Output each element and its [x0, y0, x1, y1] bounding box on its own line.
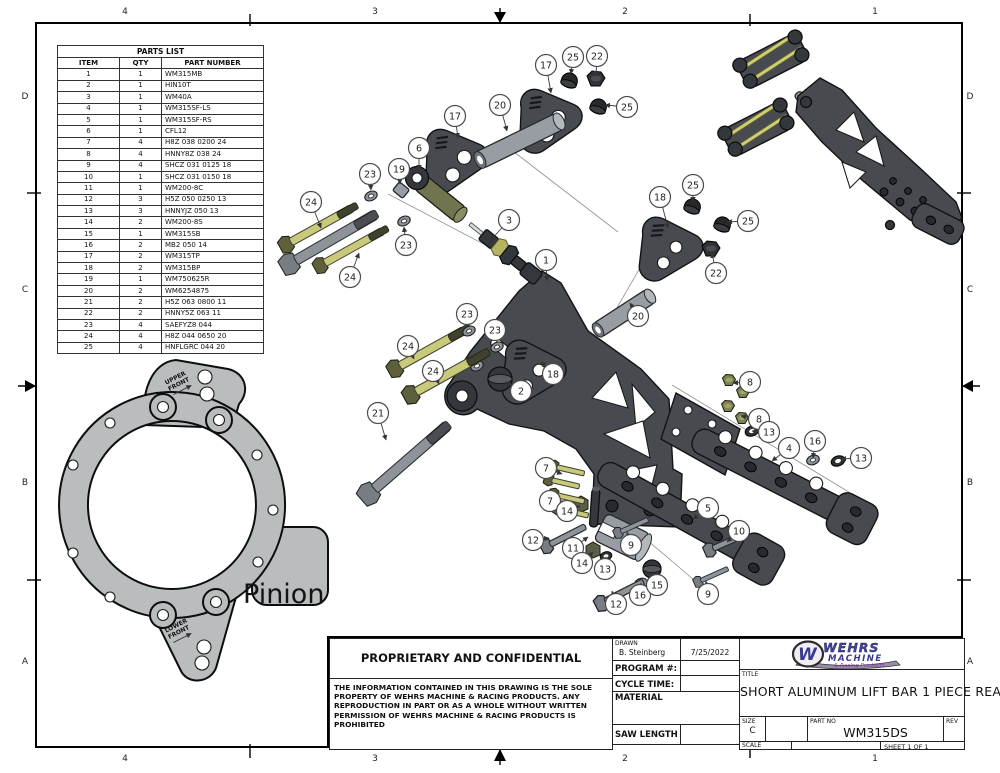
svg-text:9: 9	[705, 589, 711, 600]
cell-qty: 2	[120, 297, 162, 308]
proprietary-heading: PROPRIETARY AND CONFIDENTIAL	[330, 639, 612, 677]
part-cap-25d	[713, 215, 733, 234]
rev-cell: REV	[943, 716, 965, 742]
cell-item: 17	[58, 251, 120, 262]
cell-qty: 4	[120, 149, 162, 160]
svg-text:5: 5	[705, 503, 711, 514]
cell-item: 2	[58, 80, 120, 91]
cell-qty: 1	[120, 126, 162, 137]
cell-part-number: HNNYJZ 050 13	[162, 206, 264, 217]
scale-label: SCALE	[742, 742, 761, 749]
weight-cell	[791, 741, 881, 750]
table-row: 61CFL12	[58, 126, 264, 137]
cell-part-number: WM315SB	[162, 228, 264, 239]
table-row: 31WM40A	[58, 92, 264, 103]
size-value: C	[740, 726, 765, 736]
table-row: 51WM315SF-RS	[58, 114, 264, 125]
balloon-22: 22	[706, 253, 727, 284]
cell-part-number: SAEFYZ8 044	[162, 319, 264, 330]
svg-text:23: 23	[364, 169, 376, 180]
cell-item: 8	[58, 149, 120, 160]
cell-item: 10	[58, 171, 120, 182]
scale-cell: SCALE	[739, 741, 792, 750]
svg-text:8: 8	[747, 377, 753, 388]
cell-part-number: WM315TP	[162, 251, 264, 262]
cell-qty: 2	[120, 285, 162, 296]
cell-item: 21	[58, 297, 120, 308]
col-item: ITEM	[58, 58, 120, 69]
cell-part-number: HNFLGRC 044 20	[162, 342, 264, 353]
cell-qty: 3	[120, 206, 162, 217]
svg-text:16: 16	[634, 590, 646, 601]
cell-part-number: WM315BP	[162, 263, 264, 274]
cell-part-number: SHCZ 031 0150 18	[162, 171, 264, 182]
parts-list-body: 11WM315MB21HIN10T31WM40A41WM315SF-LS51WM…	[58, 69, 264, 354]
cell-item: 6	[58, 126, 120, 137]
svg-text:20: 20	[632, 311, 644, 322]
table-row: 123H5Z 050 0250 13	[58, 194, 264, 205]
title-block: PROPRIETARY AND CONFIDENTIAL THE INFORMA…	[327, 636, 963, 748]
cell-item: 20	[58, 285, 120, 296]
cell-item: 19	[58, 274, 120, 285]
drawn-date-cell: 7/25/2022	[680, 638, 740, 661]
cell-qty: 2	[120, 251, 162, 262]
svg-text:22: 22	[591, 51, 603, 62]
cell-part-number: H8Z 038 0200 24	[162, 137, 264, 148]
cell-part-number: HIN10T	[162, 80, 264, 91]
svg-text:12: 12	[527, 535, 539, 546]
svg-text:21: 21	[372, 408, 384, 419]
cell-part-number: WM200-8C	[162, 183, 264, 194]
cell-item: 22	[58, 308, 120, 319]
balloon-21: 21	[368, 403, 389, 441]
part-no-label: PART NO	[810, 718, 836, 725]
assembled-rocker-lower	[715, 96, 798, 160]
table-row: 142WM200-8S	[58, 217, 264, 228]
col-qty: QTY	[120, 58, 162, 69]
part-nut-8a	[723, 375, 736, 386]
svg-text:11: 11	[567, 543, 579, 554]
balloon-17: 17	[536, 55, 557, 94]
table-row: 191WM750625R	[58, 274, 264, 285]
table-row: 202WM6254875	[58, 285, 264, 296]
exploded-view	[276, 71, 882, 614]
cell-item: 5	[58, 114, 120, 125]
saw-length-value-cell[interactable]	[680, 724, 740, 745]
program-label-cell: PROGRAM #:	[612, 660, 681, 676]
proprietary-body: THE INFORMATION CONTAINED IN THIS DRAWIN…	[330, 679, 612, 733]
table-row: 172WM315TP	[58, 251, 264, 262]
drawing-title: SHORT ALUMINUM LIFT BAR 1 PIECE REAR	[740, 670, 964, 714]
cell-part-number: WM6254875	[162, 285, 264, 296]
table-row: 234SAEFYZ8 044	[58, 319, 264, 330]
parts-list-table: PARTS LIST ITEM QTY PART NUMBER 11WM315M…	[57, 45, 264, 354]
balloon-23: 23	[360, 164, 381, 191]
balloon-24: 24	[340, 253, 361, 288]
balloon-4: 4	[772, 438, 800, 462]
proprietary-body-cell: THE INFORMATION CONTAINED IN THIS DRAWIN…	[329, 678, 613, 750]
title-cell: TITLE SHORT ALUMINUM LIFT BAR 1 PIECE RE…	[739, 669, 965, 717]
svg-text:8: 8	[756, 414, 762, 425]
table-row: 41WM315SF-LS	[58, 103, 264, 114]
balloon-13: 13	[595, 557, 616, 580]
saw-length-label-cell: SAW LENGTH	[612, 724, 681, 745]
cell-part-number: WM315MB	[162, 69, 264, 80]
svg-text:13: 13	[763, 427, 775, 438]
svg-text:24: 24	[305, 197, 317, 208]
svg-text:18: 18	[654, 192, 666, 203]
balloon-25: 25	[683, 175, 704, 203]
cell-item: 3	[58, 92, 120, 103]
balloon-25: 25	[605, 97, 638, 118]
svg-text:4: 4	[786, 443, 792, 454]
svg-text:15: 15	[651, 580, 663, 591]
saw-length-label: SAW LENGTH	[615, 730, 678, 740]
cell-part-number: CFL12	[162, 126, 264, 137]
part-bolt-21	[354, 415, 456, 508]
drawn-name: B. Steinberg	[619, 648, 665, 657]
balloon-25: 25	[563, 47, 584, 75]
table-row: 222HNNY5Z 063 11	[58, 308, 264, 319]
part-nut-22b	[702, 241, 720, 256]
cell-item: 15	[58, 228, 120, 239]
part-no-value: WM315DS	[808, 725, 943, 740]
cell-item: 18	[58, 263, 120, 274]
part-cap-25a	[560, 71, 580, 90]
cell-part-number: WM750625R	[162, 274, 264, 285]
part-cap-25b	[589, 97, 609, 116]
balloon-20: 20	[490, 95, 511, 132]
table-row: 111WM200-8C	[58, 183, 264, 194]
table-row: 244H8Z 044 0650 20	[58, 331, 264, 342]
svg-text:19: 19	[393, 164, 405, 175]
svg-text:3: 3	[506, 215, 512, 226]
parts-list-header-row: ITEM QTY PART NUMBER	[58, 58, 264, 69]
part-washer-23b	[396, 214, 412, 228]
cycle-label: CYCLE TIME:	[615, 680, 674, 690]
svg-text:16: 16	[809, 436, 821, 447]
part-washer-23a	[363, 189, 379, 203]
cell-qty: 3	[120, 194, 162, 205]
cell-qty: 1	[120, 80, 162, 91]
cell-part-number: WM200-8S	[162, 217, 264, 228]
cell-item: 13	[58, 206, 120, 217]
cell-part-number: SHCZ 031 0125 18	[162, 160, 264, 171]
cell-qty: 4	[120, 160, 162, 171]
material-label: MATERIAL	[615, 693, 663, 703]
cell-item: 25	[58, 342, 120, 353]
svg-text:9: 9	[628, 540, 634, 551]
svg-text:24: 24	[427, 366, 439, 377]
table-row: 162MB2 050 14	[58, 240, 264, 251]
svg-text:25: 25	[687, 180, 699, 191]
pinion-plate: UPPER FRONT LOWER FRONT Pinion	[59, 360, 328, 680]
svg-text:25: 25	[742, 216, 754, 227]
part-bottom-plate-18a	[633, 215, 708, 290]
cell-qty: 4	[120, 342, 162, 353]
cell-qty: 1	[120, 228, 162, 239]
svg-text:24: 24	[344, 272, 356, 283]
cell-item: 12	[58, 194, 120, 205]
cell-qty: 2	[120, 217, 162, 228]
balloon-23: 23	[457, 304, 478, 328]
cell-part-number: H8Z 044 0650 20	[162, 331, 264, 342]
cell-qty: 1	[120, 274, 162, 285]
part-nut-8d	[736, 413, 749, 424]
cell-qty: 1	[120, 114, 162, 125]
svg-text:23: 23	[400, 240, 412, 251]
cell-qty: 1	[120, 103, 162, 114]
table-row: 11WM315MB	[58, 69, 264, 80]
svg-text:23: 23	[461, 309, 473, 320]
cell-qty: 4	[120, 137, 162, 148]
cell-item: 14	[58, 217, 120, 228]
balloon-13: 13	[841, 448, 872, 469]
svg-text:23: 23	[489, 325, 501, 336]
cell-part-number: H5Z 063 0800 11	[162, 297, 264, 308]
cell-part-number: HNNY5Z 063 11	[162, 308, 264, 319]
table-row: 84HNNY8Z 038 24	[58, 149, 264, 160]
program-value-cell[interactable]	[680, 660, 740, 676]
part-nut-8c	[722, 401, 735, 412]
svg-text:13: 13	[855, 453, 867, 464]
pinion-label: Pinion	[243, 579, 324, 610]
col-part-number: PART NUMBER	[162, 58, 264, 69]
cell-qty: 2	[120, 308, 162, 319]
svg-text:WEHRS: WEHRS	[823, 640, 879, 655]
table-row: 101SHCZ 031 0150 18	[58, 171, 264, 182]
cycle-value-cell[interactable]	[680, 675, 740, 692]
cell-qty: 1	[120, 92, 162, 103]
title-label: TITLE	[742, 671, 758, 678]
cycle-label-cell: CYCLE TIME:	[612, 675, 681, 692]
cell-part-number: WM315SF-LS	[162, 103, 264, 114]
drawn-cell: DRAWN B. Steinberg	[612, 638, 681, 661]
svg-text:22: 22	[710, 268, 722, 279]
cell-item: 23	[58, 319, 120, 330]
cell-item: 11	[58, 183, 120, 194]
table-row: 151WM315SB	[58, 228, 264, 239]
svg-text:14: 14	[576, 558, 588, 569]
table-row: 21HIN10T	[58, 80, 264, 91]
balloon-16: 16	[805, 431, 826, 459]
table-row: 74H8Z 038 0200 24	[58, 137, 264, 148]
cell-item: 16	[58, 240, 120, 251]
svg-text:25: 25	[567, 52, 579, 63]
svg-text:20: 20	[494, 100, 506, 111]
svg-text:13: 13	[599, 564, 611, 575]
logo-cell: W WEHRS MACHINE & Racing Products	[739, 638, 965, 670]
table-row: 94SHCZ 031 0125 18	[58, 160, 264, 171]
cell-item: 9	[58, 160, 120, 171]
cell-part-number: MB2 050 14	[162, 240, 264, 251]
sheet-value: SHEET 1 OF 1	[884, 743, 929, 751]
drawn-label: DRAWN	[615, 640, 638, 647]
rev-label: REV	[946, 718, 958, 725]
balloon-23: 23	[396, 227, 417, 256]
cell-qty: 4	[120, 319, 162, 330]
cell-item: 4	[58, 103, 120, 114]
cell-item: 24	[58, 331, 120, 342]
balloon-14: 14	[572, 552, 594, 574]
svg-text:7: 7	[543, 463, 549, 474]
balloon-25: 25	[727, 211, 759, 232]
svg-text:25: 25	[621, 102, 633, 113]
assembled-rocker-upper	[730, 28, 813, 92]
drawn-date: 7/25/2022	[681, 648, 739, 657]
cell-qty: 1	[120, 183, 162, 194]
wehrs-logo: W WEHRS MACHINE & Racing Products	[740, 639, 964, 669]
part-no-cell: PART NO WM315DS	[807, 716, 944, 742]
part-washer-13b	[830, 454, 847, 468]
svg-text:12: 12	[610, 599, 622, 610]
cell-qty: 2	[120, 240, 162, 251]
cell-part-number: H5Z 050 0250 13	[162, 194, 264, 205]
svg-text:2: 2	[518, 386, 524, 397]
cage-code-cell	[765, 716, 808, 742]
svg-text:W: W	[798, 645, 818, 665]
cell-item: 7	[58, 137, 120, 148]
svg-text:10: 10	[733, 526, 745, 537]
cell-part-number: WM315SF-RS	[162, 114, 264, 125]
svg-text:6: 6	[416, 143, 422, 154]
table-row: 182WM315BP	[58, 263, 264, 274]
svg-text:17: 17	[540, 60, 552, 71]
proprietary-heading-cell: PROPRIETARY AND CONFIDENTIAL	[329, 638, 613, 679]
balloon-10: 10	[727, 521, 750, 543]
titleblock-spacer	[612, 744, 740, 750]
cell-part-number: HNNY8Z 038 24	[162, 149, 264, 160]
table-row: 212H5Z 063 0800 11	[58, 297, 264, 308]
svg-text:1: 1	[543, 255, 549, 266]
size-label: SIZE	[742, 718, 755, 725]
table-row: 254HNFLGRC 044 20	[58, 342, 264, 353]
parts-list-title: PARTS LIST	[58, 46, 264, 58]
balloon-3: 3	[490, 210, 520, 242]
cell-part-number: WM40A	[162, 92, 264, 103]
cell-qty: 4	[120, 331, 162, 342]
svg-text:18: 18	[547, 369, 559, 380]
material-cell: MATERIAL	[612, 691, 740, 725]
cell-item: 1	[58, 69, 120, 80]
sheet-cell: SHEET 1 OF 1	[880, 741, 965, 750]
svg-text:24: 24	[402, 341, 414, 352]
svg-text:7: 7	[547, 496, 553, 507]
table-row: 133HNNYJZ 050 13	[58, 206, 264, 217]
cell-qty: 1	[120, 69, 162, 80]
cell-qty: 2	[120, 263, 162, 274]
svg-text:17: 17	[449, 111, 461, 122]
size-cell: SIZE C	[739, 716, 766, 742]
program-label: PROGRAM #:	[615, 664, 677, 674]
cell-qty: 1	[120, 171, 162, 182]
svg-text:14: 14	[561, 506, 573, 517]
drawing-sheet: 44332211DDCCBBAA	[0, 0, 1000, 773]
